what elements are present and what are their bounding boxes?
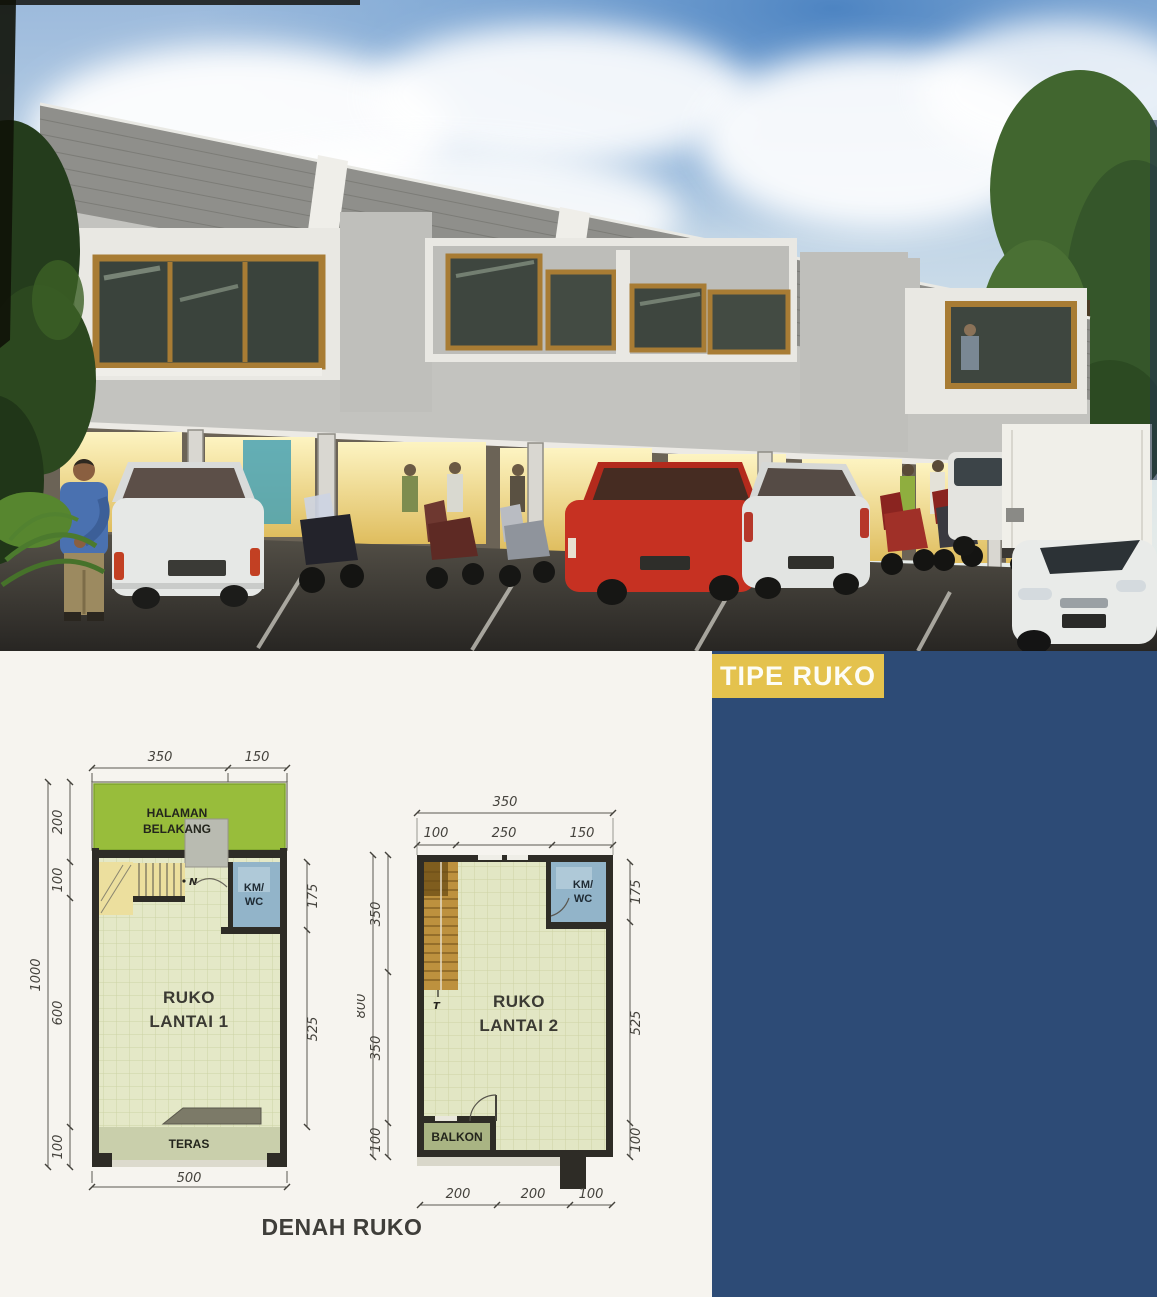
kmwc-room: KM/ WC bbox=[221, 862, 287, 934]
red-suv bbox=[565, 462, 758, 605]
plan1-structure: N KM/ WC bbox=[92, 782, 287, 1167]
balkon-label: BALKON bbox=[431, 1130, 482, 1144]
white-sedan bbox=[1012, 540, 1157, 651]
stairs bbox=[424, 862, 458, 997]
svg-text:350: 350 bbox=[369, 1036, 384, 1061]
svg-text:100: 100 bbox=[424, 826, 449, 841]
t-marker: T bbox=[433, 1001, 441, 1012]
svg-text:100: 100 bbox=[369, 1128, 384, 1153]
svg-text:350: 350 bbox=[493, 795, 518, 810]
white-hatchback bbox=[112, 462, 264, 609]
svg-text:200: 200 bbox=[51, 810, 66, 835]
side-color-panel bbox=[712, 651, 1157, 1297]
tipe-ruko-badge: TIPE RUKO bbox=[712, 654, 884, 698]
svg-text:150: 150 bbox=[570, 826, 595, 841]
svg-text:525: 525 bbox=[629, 1011, 644, 1036]
svg-text:WC: WC bbox=[245, 896, 263, 908]
plan2-title: RUKO bbox=[493, 992, 545, 1011]
brochure-page: TIPE RUKO bbox=[0, 0, 1157, 1297]
floor-plan-lantai-2: T KM/ WC BALKON bbox=[357, 788, 657, 1228]
white-mpv bbox=[742, 462, 870, 599]
svg-text:KM/: KM/ bbox=[244, 882, 264, 894]
denah-ruko-caption: DENAH RUKO bbox=[252, 1214, 432, 1241]
svg-text:1000: 1000 bbox=[29, 958, 44, 991]
svg-text:100: 100 bbox=[579, 1187, 604, 1202]
svg-text:250: 250 bbox=[492, 826, 517, 841]
svg-text:175: 175 bbox=[629, 880, 644, 905]
svg-text:600: 600 bbox=[51, 1001, 66, 1026]
svg-text:100: 100 bbox=[629, 1128, 644, 1153]
tipe-ruko-label: TIPE RUKO bbox=[720, 661, 876, 692]
kmwc-room: KM/ WC bbox=[546, 862, 613, 929]
svg-text:150: 150 bbox=[245, 750, 270, 765]
svg-text:200: 200 bbox=[446, 1187, 471, 1202]
ruko-exterior-photo bbox=[0, 0, 1157, 651]
teras-label: TERAS bbox=[169, 1137, 210, 1151]
svg-text:100: 100 bbox=[51, 868, 66, 893]
svg-text:175: 175 bbox=[306, 884, 321, 909]
window-unit-2-3 bbox=[425, 238, 797, 362]
floor-plan-lantai-1: N KM/ WC HALAMAN BELAKANG RUKO LANTAI 1 bbox=[25, 735, 335, 1205]
svg-text:LANTAI 1: LANTAI 1 bbox=[149, 1012, 228, 1031]
svg-text:800: 800 bbox=[357, 994, 369, 1019]
svg-text:350: 350 bbox=[148, 750, 173, 765]
svg-text:200: 200 bbox=[521, 1187, 546, 1202]
svg-text:350: 350 bbox=[369, 902, 384, 927]
svg-text:LANTAI 2: LANTAI 2 bbox=[479, 1016, 558, 1035]
halaman-label: HALAMAN bbox=[147, 806, 208, 820]
plan1-title: RUKO bbox=[163, 988, 215, 1007]
svg-text:525: 525 bbox=[306, 1017, 321, 1042]
svg-text:500: 500 bbox=[177, 1171, 202, 1186]
svg-text:WC: WC bbox=[574, 893, 592, 905]
person-at-window bbox=[964, 324, 976, 336]
svg-text:100: 100 bbox=[51, 1135, 66, 1160]
window-unit-1 bbox=[75, 228, 340, 380]
svg-text:KM/: KM/ bbox=[573, 879, 593, 891]
entry-step bbox=[560, 1157, 586, 1189]
svg-text:BELAKANG: BELAKANG bbox=[143, 822, 211, 836]
